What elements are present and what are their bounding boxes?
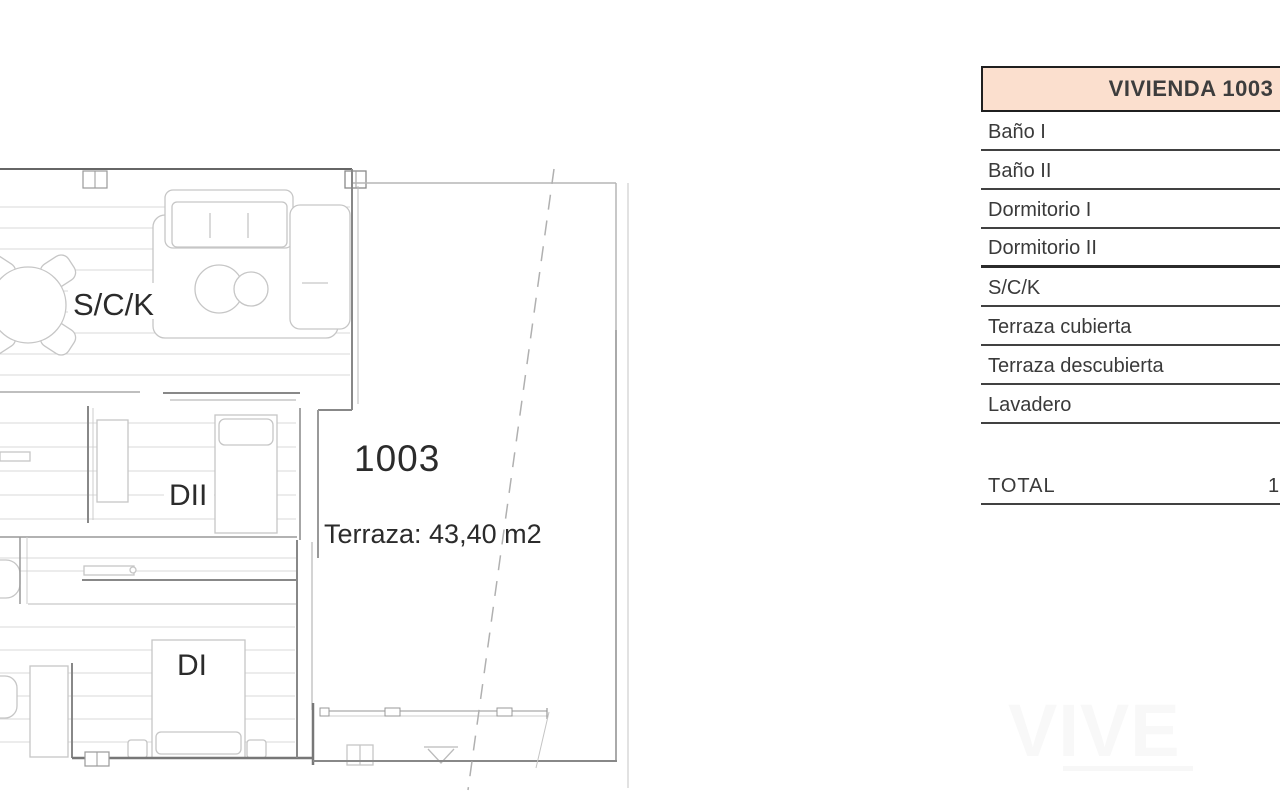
room-label-sck: S/C/K (73, 287, 154, 322)
unit-number-label: 1003 (354, 438, 440, 479)
table-row-label: Dormitorio I (988, 199, 1091, 222)
table-row-label: Dormitorio II (988, 237, 1097, 260)
room-table: VIVIENDA 1003 Baño IBaño IIDormitorio ID… (981, 66, 1280, 505)
fixture (0, 676, 17, 718)
room-label-dii: DII (169, 479, 207, 512)
coffee-table (234, 272, 268, 306)
table-row: Lavadero (981, 385, 1280, 424)
table-row-label: Terraza cubierta (988, 316, 1131, 339)
armchair (290, 205, 350, 329)
table-row: Terraza descubierta (981, 346, 1280, 385)
table-row: Dormitorio I (981, 190, 1280, 229)
sofa (165, 190, 293, 248)
table-row-label: Lavadero (988, 394, 1071, 417)
table-row: Dormitorio II (981, 229, 1280, 268)
fixture (0, 452, 30, 461)
table-row-label: S/C/K (988, 277, 1040, 300)
terrace-area-label: Terraza: 43,40 m2 (324, 519, 542, 549)
floor-plan: S/C/K DII DI 1003 Terraza: 43,40 m2 (0, 0, 660, 800)
table-row: Terraza cubierta (981, 307, 1280, 346)
table-row: Baño II (981, 151, 1280, 190)
table-row-label: Baño I (988, 121, 1046, 144)
table-row: Baño I (981, 112, 1280, 151)
room-label-di: DI (177, 649, 207, 682)
table-row-label: Baño II (988, 160, 1051, 183)
table-row-label: Terraza descubierta (988, 355, 1164, 378)
shelf (84, 566, 134, 575)
plan-labels: S/C/K DII DI 1003 Terraza: 43,40 m2 (68, 283, 542, 682)
nightstand (247, 740, 266, 758)
watermark-logo: VIVE (1008, 688, 1181, 773)
watermark-tagline-bar (1063, 766, 1193, 771)
table-header: VIVIENDA 1003 (981, 66, 1280, 112)
total-value: 1 (1268, 475, 1279, 498)
room-table-rows: Baño IBaño IIDormitorio IDormitorio IIS/… (981, 112, 1280, 424)
table-row: S/C/K (981, 268, 1280, 307)
dashed-boundary-line (468, 169, 554, 790)
fixture (0, 560, 20, 598)
nightstand (128, 740, 147, 758)
wardrobe-dii (97, 420, 128, 502)
total-label: TOTAL (988, 475, 1056, 498)
table-total-row: TOTAL 1 (981, 466, 1280, 505)
wardrobe-di (30, 666, 68, 757)
